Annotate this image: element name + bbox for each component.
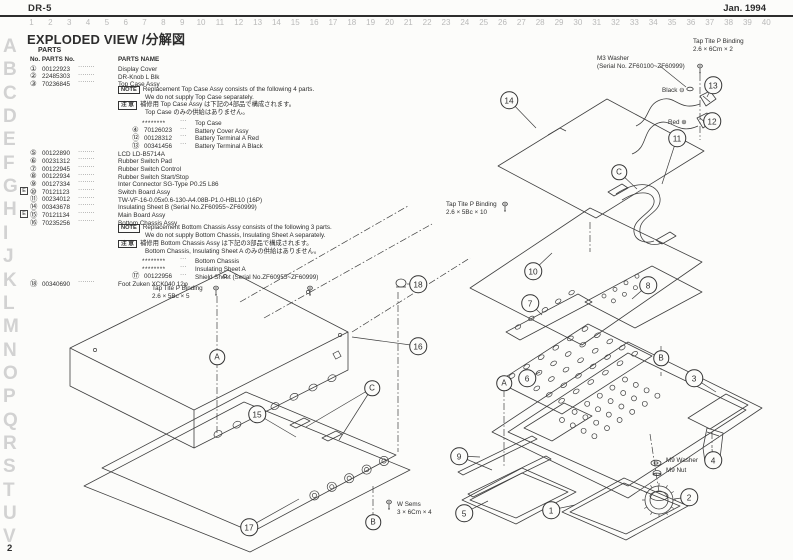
top-case <box>492 342 762 498</box>
callout-15: 15 <box>248 405 266 423</box>
callout-14: 14 <box>500 91 518 109</box>
screw-icons <box>214 64 703 509</box>
callout-5: 5 <box>455 504 473 522</box>
lcd <box>462 468 576 524</box>
diagram-label: Red ⊕ <box>668 119 687 127</box>
callout-10: 10 <box>524 262 542 280</box>
callout-6: 6 <box>518 369 536 387</box>
diagram-label: Tap Tite P Binding2.6 × 6Cm × 2 <box>693 38 744 54</box>
m9-washer-part <box>651 460 661 466</box>
rubber-switch-pad <box>498 324 652 414</box>
flex-cable <box>616 185 662 245</box>
display-aperture <box>524 403 592 441</box>
diagram-label: M9 Nut <box>666 467 686 475</box>
detail-decorations <box>93 274 676 517</box>
callout-12: 12 <box>703 112 721 130</box>
callout-B: B <box>365 514 381 530</box>
callout-13: 13 <box>704 76 722 94</box>
callout-11: 11 <box>668 129 686 147</box>
display-cover <box>562 478 688 540</box>
callout-C: C <box>364 380 380 396</box>
callout-2: 2 <box>680 488 698 506</box>
callout-A: A <box>496 375 512 391</box>
insulating-sheet-b <box>498 99 704 218</box>
foot-part <box>396 279 406 287</box>
callout-C: C <box>611 164 627 180</box>
service-manual-page: DR-5 Jan. 1994 1234567891011121314151617… <box>0 0 793 560</box>
rubber-switch-control <box>506 294 592 340</box>
diagram-label: Tap Tite P Binding2.6 × 5Bc × 5 <box>152 285 203 301</box>
switch-board <box>470 208 702 345</box>
callout-3: 3 <box>685 369 703 387</box>
callout-8: 8 <box>639 276 657 294</box>
diagram-label: W Sems3 × 6Cm × 4 <box>397 501 432 517</box>
callout-16: 16 <box>409 337 427 355</box>
callout-B: B <box>653 350 669 366</box>
red-wire <box>632 122 698 154</box>
callout-7: 7 <box>521 294 539 312</box>
diagram-label: M3 Washer(Serial No. ZF60100~ZF60999) <box>597 55 685 71</box>
m3-washer-part <box>687 87 693 91</box>
exploded-view-diagram <box>0 0 793 560</box>
leader-lines <box>249 66 716 527</box>
diagram-label: Black ⊖ <box>662 87 684 95</box>
callout-4: 4 <box>704 451 722 469</box>
part-outlines <box>70 87 762 552</box>
callout-9: 9 <box>450 447 468 465</box>
inter-connector-2 <box>468 456 551 497</box>
diagram-label: Tap Tite P Binding2.6 × 5Bc × 10 <box>446 201 497 217</box>
callout-A: A <box>209 349 225 365</box>
diagram-label: M9 Washer <box>666 457 698 465</box>
callout-18: 18 <box>409 275 427 293</box>
bottom-chassis <box>70 270 348 410</box>
callout-17: 17 <box>240 518 258 536</box>
callout-1: 1 <box>542 501 560 519</box>
